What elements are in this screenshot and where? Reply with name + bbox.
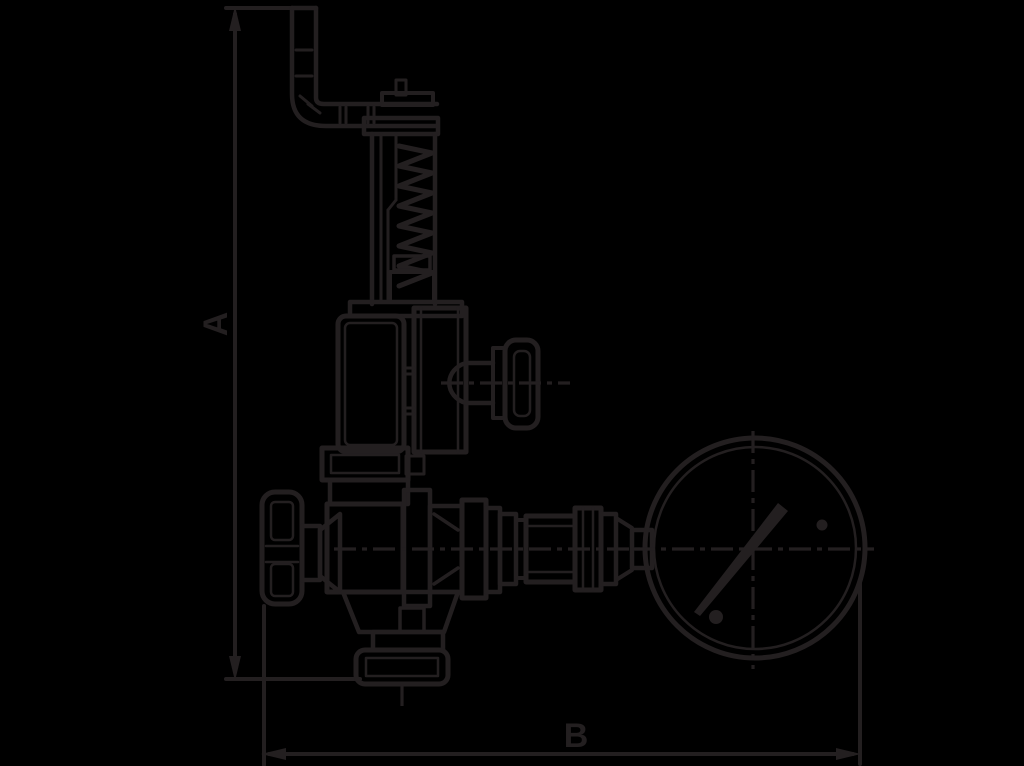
gauge-screw-dot (709, 610, 723, 624)
taper-center-block (400, 608, 424, 632)
gland-flange-inner (331, 455, 399, 473)
left-handwheel (262, 492, 302, 604)
dimension-a-label: A (197, 312, 235, 337)
foot-neck (373, 632, 443, 650)
side-outlet (441, 340, 570, 428)
lever-elbow-tick (308, 104, 320, 113)
valve-technical-drawing: A B (0, 0, 1024, 766)
gauge-screw-dot (817, 520, 828, 531)
boss-chamfer (434, 514, 458, 530)
dimension-b-label: B (564, 717, 589, 755)
left-handwheel-inner-bottom (271, 564, 293, 596)
mid-flange (322, 448, 424, 504)
upper-body-shell (338, 316, 404, 452)
wheel-bonnet-cone (320, 514, 340, 592)
spindle-shoulder (388, 200, 396, 210)
foot-flange-inner (366, 658, 438, 676)
gauge-needle (694, 503, 788, 616)
lever-inner-edge (316, 8, 437, 104)
boss-chamfer (434, 568, 458, 584)
wheel-stem (302, 526, 320, 580)
packing-ring (330, 480, 408, 504)
foot-flange (356, 650, 448, 684)
left-handwheel-inner-top (271, 502, 293, 540)
upper-body (338, 302, 466, 452)
bottom-outlet (343, 592, 458, 708)
upper-body-shell-inner (345, 323, 397, 445)
adjusting-cap (382, 93, 433, 105)
test-lever (292, 8, 437, 126)
dimension-b-arrow-right (836, 748, 861, 760)
spring-coils (399, 146, 432, 286)
pressure-gauge (633, 431, 874, 669)
